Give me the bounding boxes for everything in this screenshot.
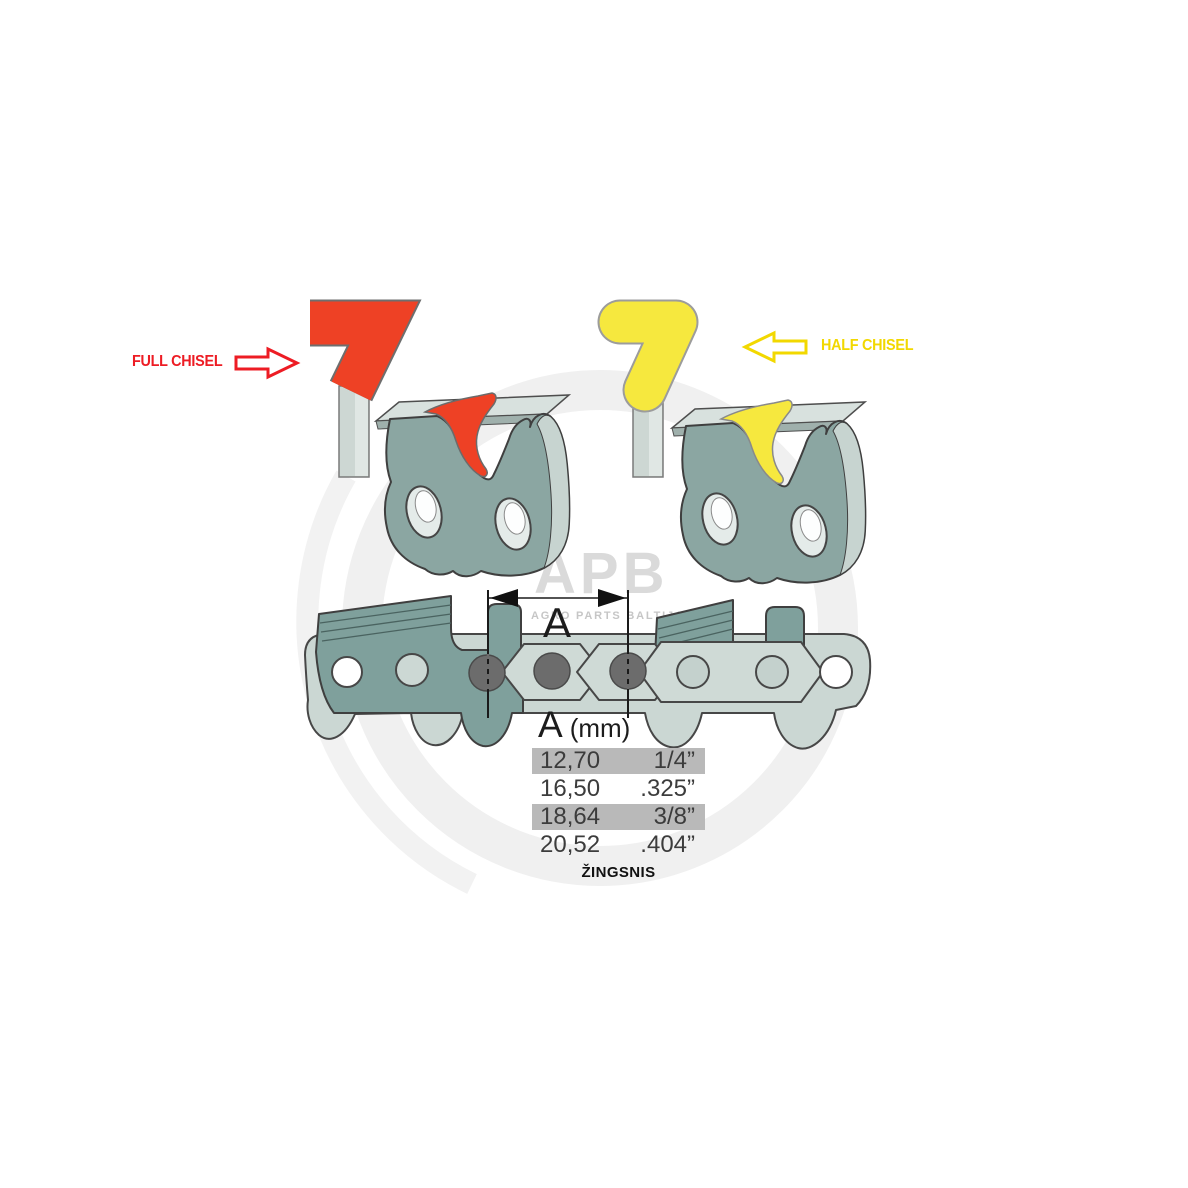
chain-rivet xyxy=(534,653,570,689)
half-chisel-arrow-icon xyxy=(745,333,806,361)
chain-artwork xyxy=(0,0,1188,1188)
chain-hole xyxy=(677,656,709,688)
pitch-mm-value: 12,70 xyxy=(540,747,600,775)
half-chisel-corner xyxy=(620,322,676,390)
pitch-table-header: A (mm) xyxy=(538,706,705,744)
pitch-mm-value: 16,50 xyxy=(540,775,600,803)
pitch-table-row: 20,52.404” xyxy=(532,832,705,858)
pitch-table: A (mm) 12,701/4”16,50.325”18,643/8”20,52… xyxy=(532,706,705,860)
pitch-inch-value: 1/4” xyxy=(654,747,695,775)
diagram-canvas: APB AGRO PARTS BALTIJA xyxy=(0,0,1188,1188)
pitch-caption: ŽINGSNIS xyxy=(532,864,705,881)
dimension-letter: A xyxy=(543,599,571,647)
full-chisel-label: FULL CHISEL xyxy=(132,353,222,371)
chain-hole xyxy=(756,656,788,688)
pitch-inch-value: 3/8” xyxy=(654,803,695,831)
cutter-link-full-chisel xyxy=(376,393,569,576)
pitch-mm-value: 20,52 xyxy=(540,831,600,859)
pitch-mm-value: 18,64 xyxy=(540,803,600,831)
chain-hole xyxy=(820,656,852,688)
dimension-arrow-right-icon xyxy=(598,589,626,607)
pitch-table-rows: 12,701/4”16,50.325”18,643/8”20,52.404” xyxy=(532,748,705,858)
full-chisel-profile xyxy=(310,323,384,477)
pitch-table-row: 16,50.325” xyxy=(532,776,705,802)
chain-tie-strap xyxy=(639,642,823,702)
pitch-table-header-unit: (mm) xyxy=(570,713,631,744)
cutter-link-half-chisel xyxy=(672,400,865,583)
pitch-table-row: 18,643/8” xyxy=(532,804,705,830)
full-chisel-shank-highlight xyxy=(355,387,368,476)
chain-hole xyxy=(396,654,428,686)
chain-hole xyxy=(332,657,362,687)
half-chisel-profile xyxy=(620,322,676,477)
pitch-inch-value: .404” xyxy=(640,831,695,859)
pitch-table-header-letter: A xyxy=(538,706,563,744)
full-chisel-corner xyxy=(310,323,384,391)
full-chisel-arrow-icon xyxy=(236,349,297,377)
half-chisel-label: HALF CHISEL xyxy=(821,337,913,355)
pitch-table-row: 12,701/4” xyxy=(532,748,705,774)
pitch-inch-value: .325” xyxy=(640,775,695,803)
